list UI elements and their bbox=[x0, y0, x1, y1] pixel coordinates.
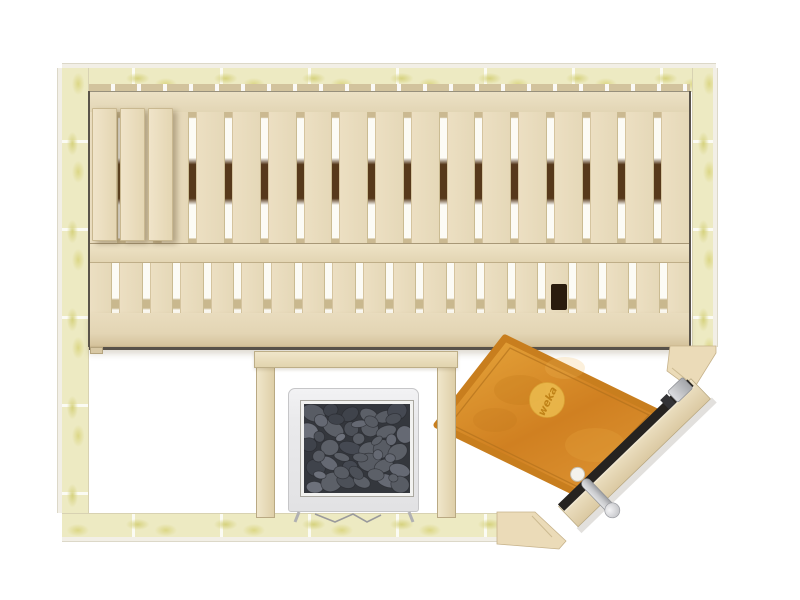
bench-slat bbox=[667, 263, 690, 313]
bench-slat bbox=[241, 263, 264, 313]
door-group bbox=[545, 365, 725, 542]
bench-back-board bbox=[89, 91, 690, 113]
heater-foot bbox=[295, 512, 299, 522]
bench-mid-board bbox=[89, 243, 690, 263]
bench-slat bbox=[332, 263, 355, 313]
bench-slat bbox=[119, 263, 142, 313]
bench-slat bbox=[211, 263, 234, 313]
bench-slat bbox=[268, 112, 297, 243]
bench-slat bbox=[636, 263, 659, 313]
bench-slat bbox=[423, 263, 446, 313]
bench-slat bbox=[302, 263, 325, 313]
heater-stone-tray bbox=[301, 401, 413, 496]
bench-slat bbox=[196, 112, 225, 243]
bench-slat bbox=[454, 263, 477, 313]
bench-slat bbox=[150, 263, 173, 313]
bench-foot bbox=[90, 347, 103, 354]
bench-slat bbox=[606, 263, 629, 313]
heater-foot bbox=[409, 512, 413, 522]
door-glass-highlight bbox=[564, 386, 695, 512]
wall-right-insulation bbox=[692, 68, 717, 347]
bench-slat bbox=[554, 112, 583, 243]
bench-slat bbox=[482, 112, 511, 243]
bench-slat bbox=[518, 112, 547, 243]
door-shadow bbox=[577, 397, 717, 533]
wall-cap-bottom bbox=[497, 512, 566, 549]
bench-slat bbox=[180, 263, 203, 313]
bench-left-edge-line bbox=[88, 91, 90, 347]
bench-slat bbox=[590, 112, 619, 243]
bench-slat bbox=[363, 263, 386, 313]
heater-rail-top-bar bbox=[254, 351, 458, 368]
bench-right-edge-line bbox=[689, 91, 691, 347]
headrest-plank bbox=[92, 108, 117, 241]
bench-slat bbox=[339, 112, 368, 243]
bench-upper-slats bbox=[89, 112, 690, 243]
bench-slat bbox=[411, 112, 440, 243]
heater-stones bbox=[304, 404, 410, 493]
bench-slat bbox=[447, 112, 476, 243]
bench-headrest bbox=[92, 108, 173, 241]
heater-base bbox=[285, 510, 425, 528]
bench-slat bbox=[625, 112, 654, 243]
bench-vent-opening bbox=[551, 284, 567, 310]
sauna-floorplan: weka bbox=[0, 0, 800, 600]
bench-slat bbox=[232, 112, 261, 243]
bench-slat bbox=[89, 263, 112, 313]
bench-slat bbox=[576, 263, 599, 313]
corner-door-svg bbox=[430, 330, 730, 560]
bench-slat bbox=[271, 263, 294, 313]
bench-slat bbox=[661, 112, 690, 243]
bench-slat bbox=[393, 263, 416, 313]
bench-slat bbox=[484, 263, 507, 313]
bench-slat bbox=[304, 112, 333, 243]
heater-rail-post-left bbox=[256, 351, 275, 518]
headrest-plank bbox=[148, 108, 173, 241]
wall-stud-strip bbox=[89, 84, 690, 91]
heater-power-cord bbox=[315, 514, 381, 522]
bench-slat bbox=[515, 263, 538, 313]
door-glass-edge bbox=[558, 379, 694, 511]
headrest-plank bbox=[120, 108, 145, 241]
bench-slat bbox=[375, 112, 404, 243]
bench-lower-slats bbox=[89, 263, 690, 313]
wall-left-insulation bbox=[58, 68, 89, 513]
door-wood-frame bbox=[559, 379, 711, 527]
